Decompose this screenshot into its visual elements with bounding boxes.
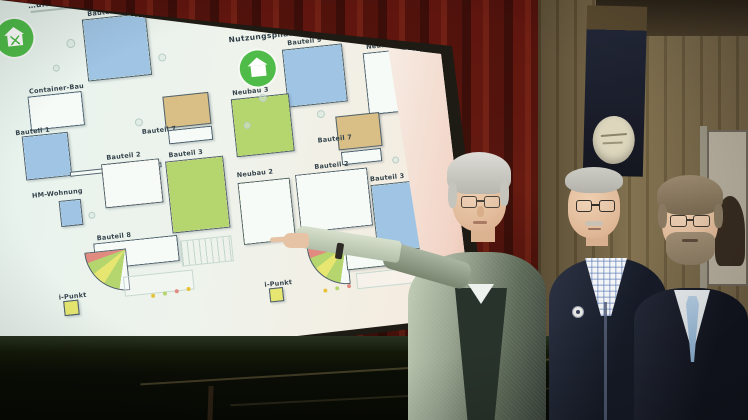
glasses-lens: [670, 215, 687, 227]
jacket-logo-badge: [572, 306, 584, 318]
building-bauteil-7: [335, 112, 382, 150]
glasses-lens: [484, 196, 500, 208]
tree-symbol: [392, 156, 400, 164]
jacket-zipper: [604, 302, 607, 420]
legend-dot: [186, 287, 190, 291]
floor-plan-bestand: …ult - Bestand Bauteil 9 Container-Bau B…: [2, 0, 248, 338]
banner-script-line: [603, 142, 623, 144]
building-bauteil-1: [22, 132, 72, 181]
building-i-punkt: [63, 300, 79, 316]
man3-dark-suit: [634, 288, 748, 420]
room-cell: [23, 133, 71, 179]
room-cell: [29, 92, 84, 129]
room-cell: [64, 301, 78, 315]
room-cell: [232, 94, 294, 156]
man3-beard: [666, 232, 715, 265]
man3-hair-side: [714, 204, 723, 228]
presenter-mouth: [473, 221, 487, 224]
man2-mustache: [585, 221, 603, 226]
building-hm-wohnung: [59, 199, 84, 227]
man3-hair-side: [658, 204, 667, 228]
glasses-bridge: [687, 219, 694, 221]
legend-dot: [175, 289, 179, 293]
banner-script-line: [601, 133, 627, 137]
building-bauteil-9: [82, 13, 152, 81]
building-bauteil-3: [165, 156, 230, 234]
label-neubau-2: Neubau 2: [236, 167, 273, 179]
room-cell: [102, 160, 162, 208]
room-cell: [283, 45, 347, 107]
building-neubau-3: [231, 93, 295, 157]
tree-symbol: [52, 64, 60, 72]
tree-symbol: [317, 110, 326, 119]
glasses-lens: [461, 196, 477, 208]
presenter-hand: [283, 233, 309, 248]
house-icon: [238, 49, 278, 89]
stand-post: [207, 386, 213, 420]
banner-logo: [592, 115, 635, 164]
photo-scene: …ult - Bestand Bauteil 9 Container-Bau B…: [0, 0, 748, 420]
building-i-punkt: [269, 287, 284, 302]
man3-mouth: [682, 239, 698, 242]
legend-dot: [347, 284, 351, 288]
man2-mouth: [588, 228, 601, 230]
tree-symbol: [135, 118, 144, 127]
presenter-hair-side: [448, 182, 457, 208]
house-tools-icon: [0, 17, 35, 59]
building-bauteil-7: [162, 92, 211, 129]
glasses-lens: [693, 215, 710, 227]
presenter-hair-side: [500, 180, 509, 206]
legend-dot: [163, 291, 167, 295]
building-bauteil-2: [295, 168, 373, 233]
room-cell: [296, 169, 371, 232]
tree-symbol: [88, 211, 96, 219]
legend-dot: [151, 294, 155, 298]
building-bauteil-9: [282, 44, 348, 108]
room-cell: [83, 14, 151, 80]
legend-dot: [323, 288, 327, 292]
site-outline: [123, 270, 195, 297]
legend-dot: [335, 286, 339, 290]
glasses-bridge: [592, 204, 599, 206]
glasses-lens: [576, 200, 592, 212]
man2-gray-hair: [565, 167, 623, 193]
presenter-sweater: [455, 288, 507, 420]
tree-symbol: [66, 39, 76, 49]
building-container-bau: [28, 91, 85, 130]
building-bauteil-2: [101, 158, 163, 208]
glasses-bridge: [477, 200, 485, 202]
tree-symbol: [158, 53, 167, 62]
room-cell: [169, 127, 212, 143]
presenter-nose: [477, 206, 484, 217]
label-hm-wohnung: HM-Wohnung: [32, 187, 83, 200]
wall-banner: [583, 5, 647, 177]
room-cell: [166, 157, 229, 232]
man3-hair: [657, 175, 723, 215]
crossed-tools-glyph: [10, 35, 20, 45]
room-cell: [270, 288, 283, 301]
glasses-lens: [599, 200, 615, 212]
room-cell: [60, 200, 82, 226]
parking-lot: [180, 235, 234, 266]
